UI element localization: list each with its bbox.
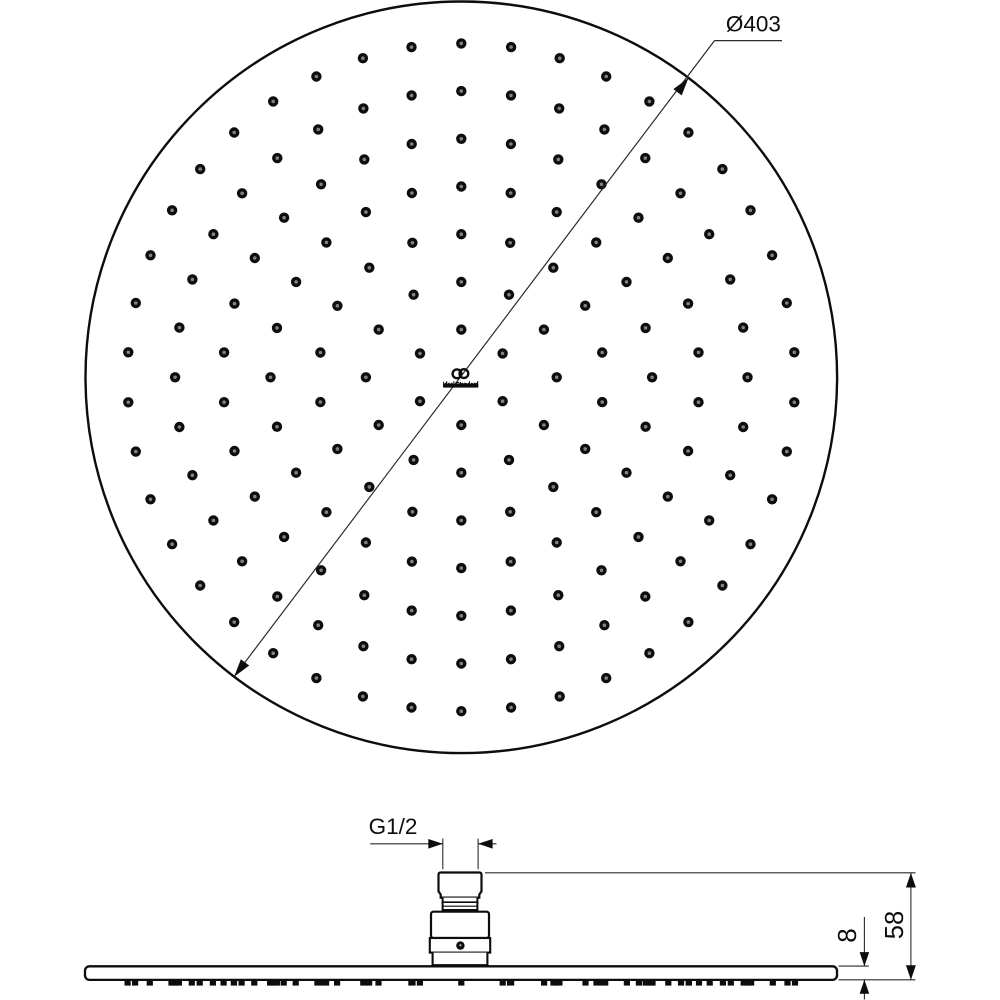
svg-text:58: 58 bbox=[879, 911, 909, 940]
svg-text:G1/2: G1/2 bbox=[369, 814, 418, 839]
svg-text:8: 8 bbox=[832, 928, 862, 942]
svg-text:Ø403: Ø403 bbox=[726, 11, 781, 36]
